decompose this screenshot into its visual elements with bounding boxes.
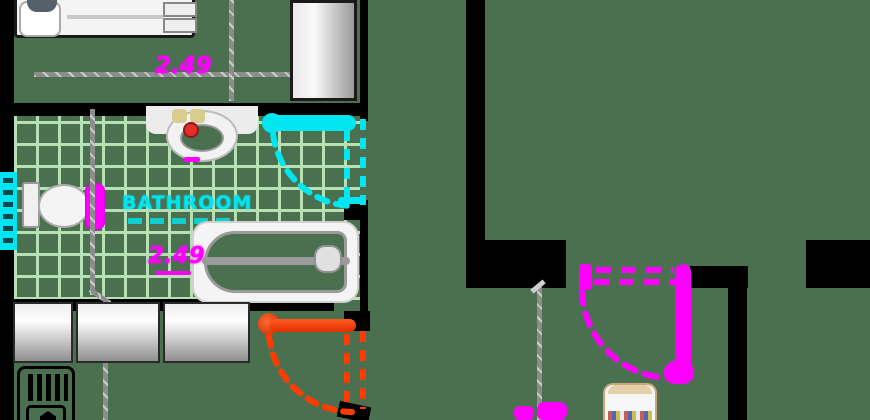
bathroom-door-arc-path	[273, 134, 350, 206]
stool-icon	[603, 383, 657, 420]
toilet-icon	[22, 182, 92, 230]
toilet-bowl	[38, 184, 90, 228]
stool-top-edge	[608, 385, 652, 394]
bathroom-door-leaf	[85, 183, 105, 230]
wall-rightroom-vertical	[728, 266, 747, 420]
room-label-bathroom: BATHROOM	[122, 194, 252, 213]
radiator-icon	[17, 366, 75, 420]
wardrobe-doors-icon	[13, 302, 73, 363]
window-mullions	[3, 178, 13, 244]
radiator-fins	[28, 374, 68, 401]
radiator-arrow-icon	[40, 411, 56, 420]
bathroom-door-threshold-inner	[344, 130, 350, 204]
closet-door-arc-path	[269, 336, 352, 412]
bed-foot-lower	[163, 18, 197, 33]
wardrobe-door-middle	[76, 302, 160, 363]
stool-speckles	[608, 411, 652, 420]
dimension-label-right-cut-b	[537, 402, 567, 420]
dimension-line-right-room	[537, 287, 542, 420]
bathtub-icon	[192, 221, 359, 303]
bathroom-door-threshold-outer	[360, 119, 366, 205]
floor-plan: 2.49 BATHROOM 2.49	[0, 0, 870, 420]
adjacent-door-dashes-top	[596, 267, 674, 273]
wardrobe-door-right	[163, 302, 250, 363]
adjacent-door-arc-path	[582, 292, 666, 378]
wall-rightroom-right	[806, 240, 870, 288]
dimension-label-bathtub: 2.49	[148, 245, 205, 268]
soap-dish-right	[190, 109, 205, 123]
dimension-label-bedroom: 2.49	[155, 55, 212, 78]
faucet-dot	[183, 122, 199, 138]
bathtub-faucet	[314, 245, 342, 273]
wall-rightroom-corner	[466, 240, 566, 288]
dimension-label-underline	[155, 271, 191, 275]
bed-blanket-fold	[67, 15, 163, 19]
adjacent-door-arc	[576, 286, 676, 384]
washbasin-mark	[184, 157, 200, 162]
radiator-base	[26, 405, 66, 420]
closet-door-threshold-outer	[360, 331, 366, 409]
adjacent-door-dashes-bottom	[594, 279, 676, 285]
wall-rightroom-left	[466, 0, 485, 253]
cabinet-icon	[290, 0, 357, 101]
dimension-line-vertical-bathroom	[90, 109, 95, 295]
window-icon	[0, 172, 17, 250]
bathroom-door-threshold-bottom	[338, 197, 364, 204]
bed-headboard	[27, 0, 57, 12]
dimension-label-right-cut-a	[514, 406, 534, 420]
soap-dish-left	[172, 109, 187, 123]
bed-icon	[14, 0, 195, 38]
closet-door-threshold-inner	[344, 334, 350, 404]
wall-right-upper	[360, 0, 368, 121]
bed-foot-upper	[163, 2, 197, 17]
dimension-line-vertical-bedroom	[229, 0, 234, 101]
dimension-line-vertical-closet	[103, 358, 108, 420]
washbasin-icon	[146, 104, 258, 166]
